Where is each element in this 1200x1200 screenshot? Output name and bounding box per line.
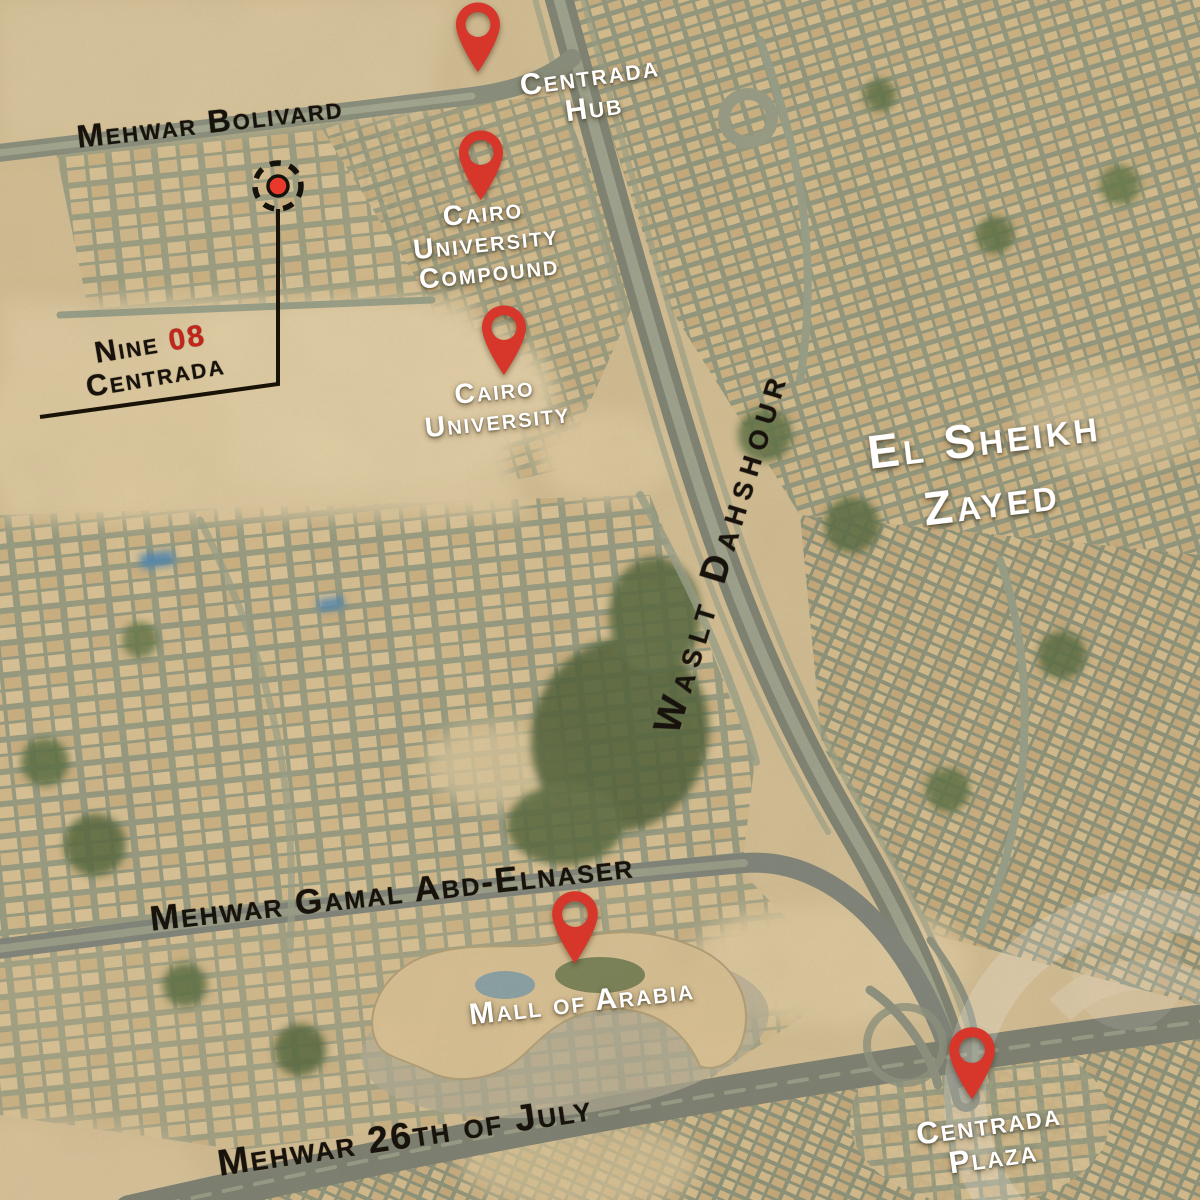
- pin-icon: [546, 888, 604, 966]
- pin-label-cairo-university-compound: Cairo University Compound: [409, 190, 563, 295]
- map-pin-cairo-university[interactable]: [476, 303, 532, 377]
- map-pin-mall-of-arabia[interactable]: [546, 888, 604, 966]
- map-pin-cairo-university-compound[interactable]: [453, 128, 509, 202]
- pin-icon: [476, 303, 532, 377]
- pin-icon: [943, 1024, 1001, 1102]
- map-pin-centrada-plaza[interactable]: [943, 1024, 1001, 1102]
- pin-icon: [453, 128, 509, 202]
- location-map-image: Nine 08 Centrada Mehwar Bolivard Waslt D…: [0, 0, 1200, 1200]
- map-pin-centrada-hub[interactable]: [450, 0, 506, 74]
- pin-icon: [450, 0, 506, 74]
- satellite-basemap: [0, 0, 1200, 1200]
